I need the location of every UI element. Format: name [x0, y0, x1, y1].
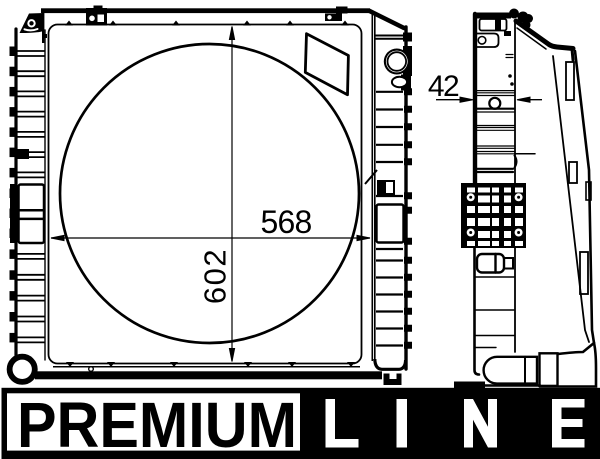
svg-text:568: 568 — [261, 204, 312, 240]
svg-text:42: 42 — [428, 70, 459, 103]
svg-text:602: 602 — [198, 248, 233, 304]
svg-text:PREMIUM: PREMIUM — [17, 389, 297, 459]
